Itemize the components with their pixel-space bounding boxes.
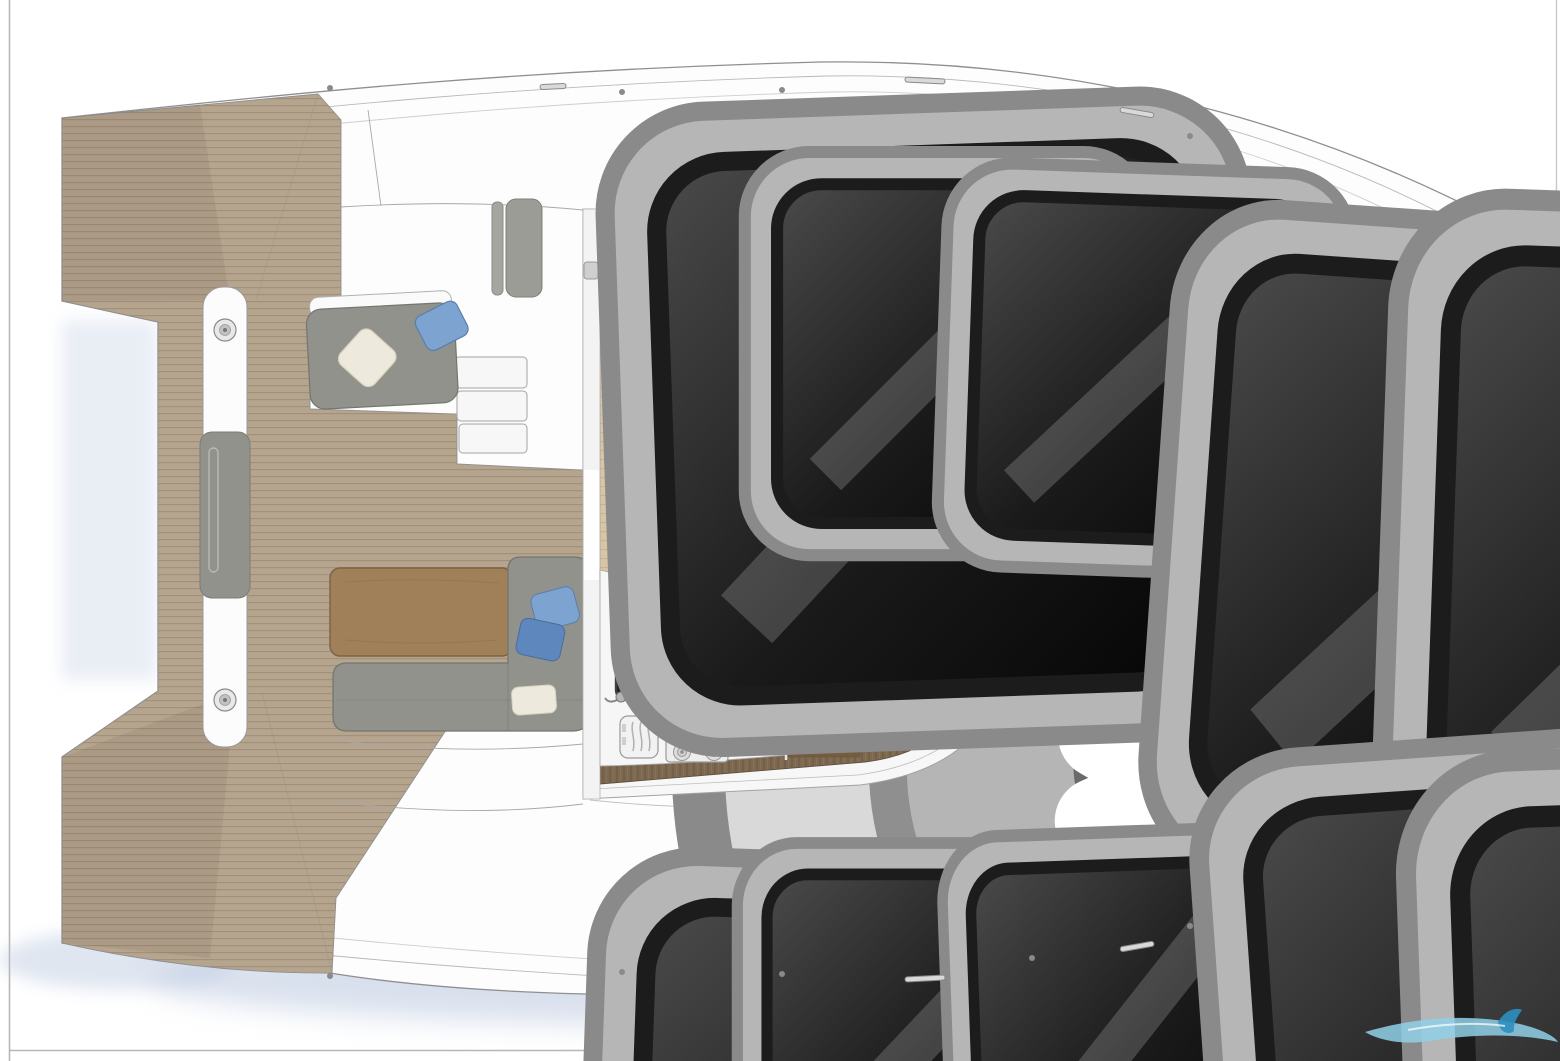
cockpit-steps [455, 357, 527, 453]
cockpit-sunbed [305, 289, 474, 409]
companionway-side-cushions [492, 199, 542, 297]
transom-bench [200, 287, 250, 747]
catamaran-floorplan [0, 0, 1560, 1061]
cockpit-sofa-white-pillow [511, 684, 557, 715]
saloon-forward-wall [583, 209, 600, 799]
transom-bench-cushion [200, 432, 250, 598]
door-latch [584, 262, 598, 279]
mooring-fitting-aft-bottom [214, 689, 236, 711]
floorplan-canvas [0, 0, 1560, 1061]
cockpit-table [330, 568, 512, 656]
mooring-fitting-aft-top [214, 319, 236, 341]
